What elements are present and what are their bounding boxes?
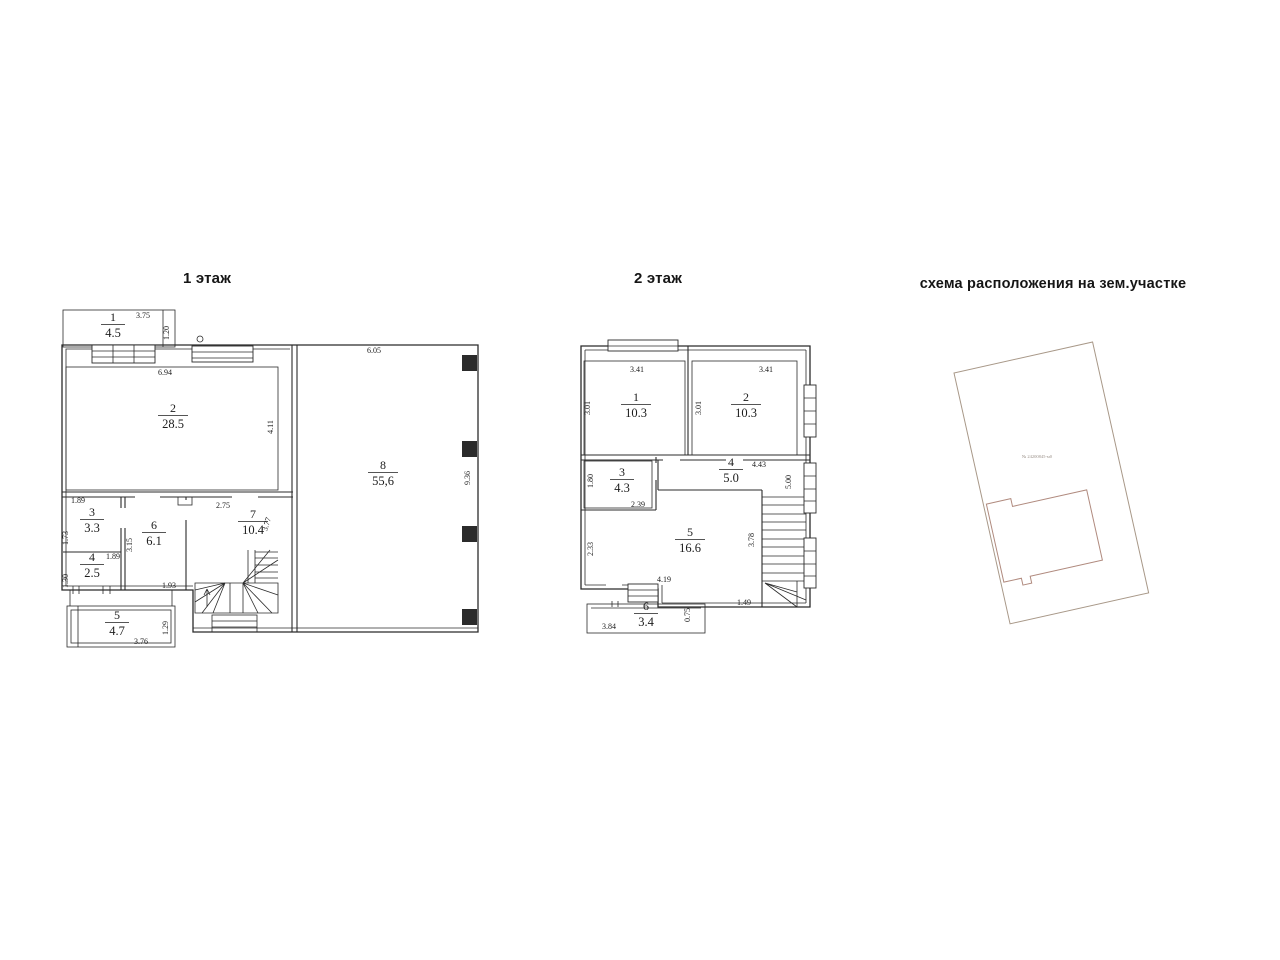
window-icon (608, 340, 678, 351)
room-number: 1 (633, 390, 639, 404)
room-area: 5.0 (723, 471, 739, 485)
floor1-plan: 14.5228.533.342.554.766.1710.4855,6 3.75… (61, 310, 478, 647)
floorplan-page: 1 этаж 2 этаж схема расположения на зем.… (0, 0, 1280, 960)
column-icon (462, 609, 477, 625)
room-area: 28.5 (162, 417, 184, 431)
room-area: 10.3 (735, 406, 757, 420)
dimension-label: 6.05 (367, 346, 381, 355)
dimension-label: 0.75 (683, 608, 692, 622)
dimension-label: 3.15 (125, 538, 134, 552)
dimension-label: 3.84 (602, 622, 616, 631)
dimension-label: 5.00 (784, 475, 793, 489)
window-icon (804, 538, 816, 588)
room-number: 5 (687, 525, 693, 539)
floor2-plan: 110.3210.334.345.0516.663.4 3.413.013.41… (581, 340, 816, 633)
column-icon (462, 355, 477, 371)
room-number: 7 (250, 507, 256, 521)
dimension-label: 3.78 (747, 533, 756, 547)
room-area: 4.7 (109, 624, 125, 638)
dimension-label: 1.49 (737, 598, 751, 607)
building-footprint (986, 482, 1104, 589)
room-area: 10.3 (625, 406, 647, 420)
room-area: 55,6 (372, 474, 394, 488)
dimension-label: 2.75 (216, 501, 230, 510)
chimney-block (178, 497, 192, 505)
dimension-label: 1.73 (61, 531, 70, 545)
dimension-label: 3.01 (694, 401, 703, 415)
room-number: 4 (89, 550, 95, 564)
floor1-middle-wall (292, 345, 297, 632)
dimension-label: 3.75 (136, 311, 150, 320)
room-number: 1 (110, 310, 116, 324)
dimension-label: 1.89 (106, 552, 120, 561)
window-icon (804, 463, 816, 513)
window-icon (192, 346, 253, 362)
floor1-staircase (195, 550, 278, 632)
room-number: 2 (170, 401, 176, 415)
room-number: 6 (643, 599, 649, 613)
site-plan (954, 342, 1149, 624)
room-number: 4 (728, 455, 734, 469)
plot-cadastral-label: № 24200845-м0 (1022, 454, 1053, 459)
dimension-label: 3.76 (134, 637, 148, 646)
floor1-porch (67, 590, 175, 647)
dimension-label: 1.30 (61, 574, 70, 588)
dimension-label: 4.19 (657, 575, 671, 584)
dimension-label: 3.77 (260, 516, 273, 532)
dimension-label: 1.20 (162, 326, 171, 340)
floor2-staircase (762, 497, 806, 607)
dimension-label: 3.41 (630, 365, 644, 374)
dimension-label: 1.89 (71, 496, 85, 505)
room-number: 8 (380, 458, 386, 472)
dimension-label: 1.80 (586, 474, 595, 488)
column-icon (462, 526, 477, 542)
room-number: 5 (114, 608, 120, 622)
room-area: 2.5 (84, 566, 100, 580)
room-area: 4.3 (614, 481, 630, 495)
dimension-label: 1.93 (162, 581, 176, 590)
dimension-label: 1.29 (161, 621, 170, 635)
dimension-label: 6.94 (158, 368, 172, 377)
room-number: 6 (151, 518, 157, 532)
room-area: 4.5 (105, 326, 121, 340)
dimension-label: 4.11 (266, 420, 275, 434)
land-plot-boundary (954, 342, 1149, 624)
dimension-label: 3.41 (759, 365, 773, 374)
room-area: 6.1 (146, 534, 162, 548)
room-number: 2 (743, 390, 749, 404)
room-number: 3 (619, 465, 625, 479)
room-area: 16.6 (679, 541, 701, 555)
dimension-label: 2.33 (586, 542, 595, 556)
floorplan-canvas: 14.5228.533.342.554.766.1710.4855,6 3.75… (0, 0, 1280, 960)
dimension-label: 2.39 (631, 500, 645, 509)
dimension-label: 3.01 (583, 401, 592, 415)
column-icon (462, 441, 477, 457)
section-mark-icon (197, 336, 203, 342)
room-area: 3.3 (84, 521, 100, 535)
room-area: 3.4 (638, 615, 654, 629)
dimension-label: 9.36 (463, 471, 472, 485)
room-number: 3 (89, 505, 95, 519)
window-icon (92, 345, 155, 363)
dimension-label: 4.43 (752, 460, 766, 469)
